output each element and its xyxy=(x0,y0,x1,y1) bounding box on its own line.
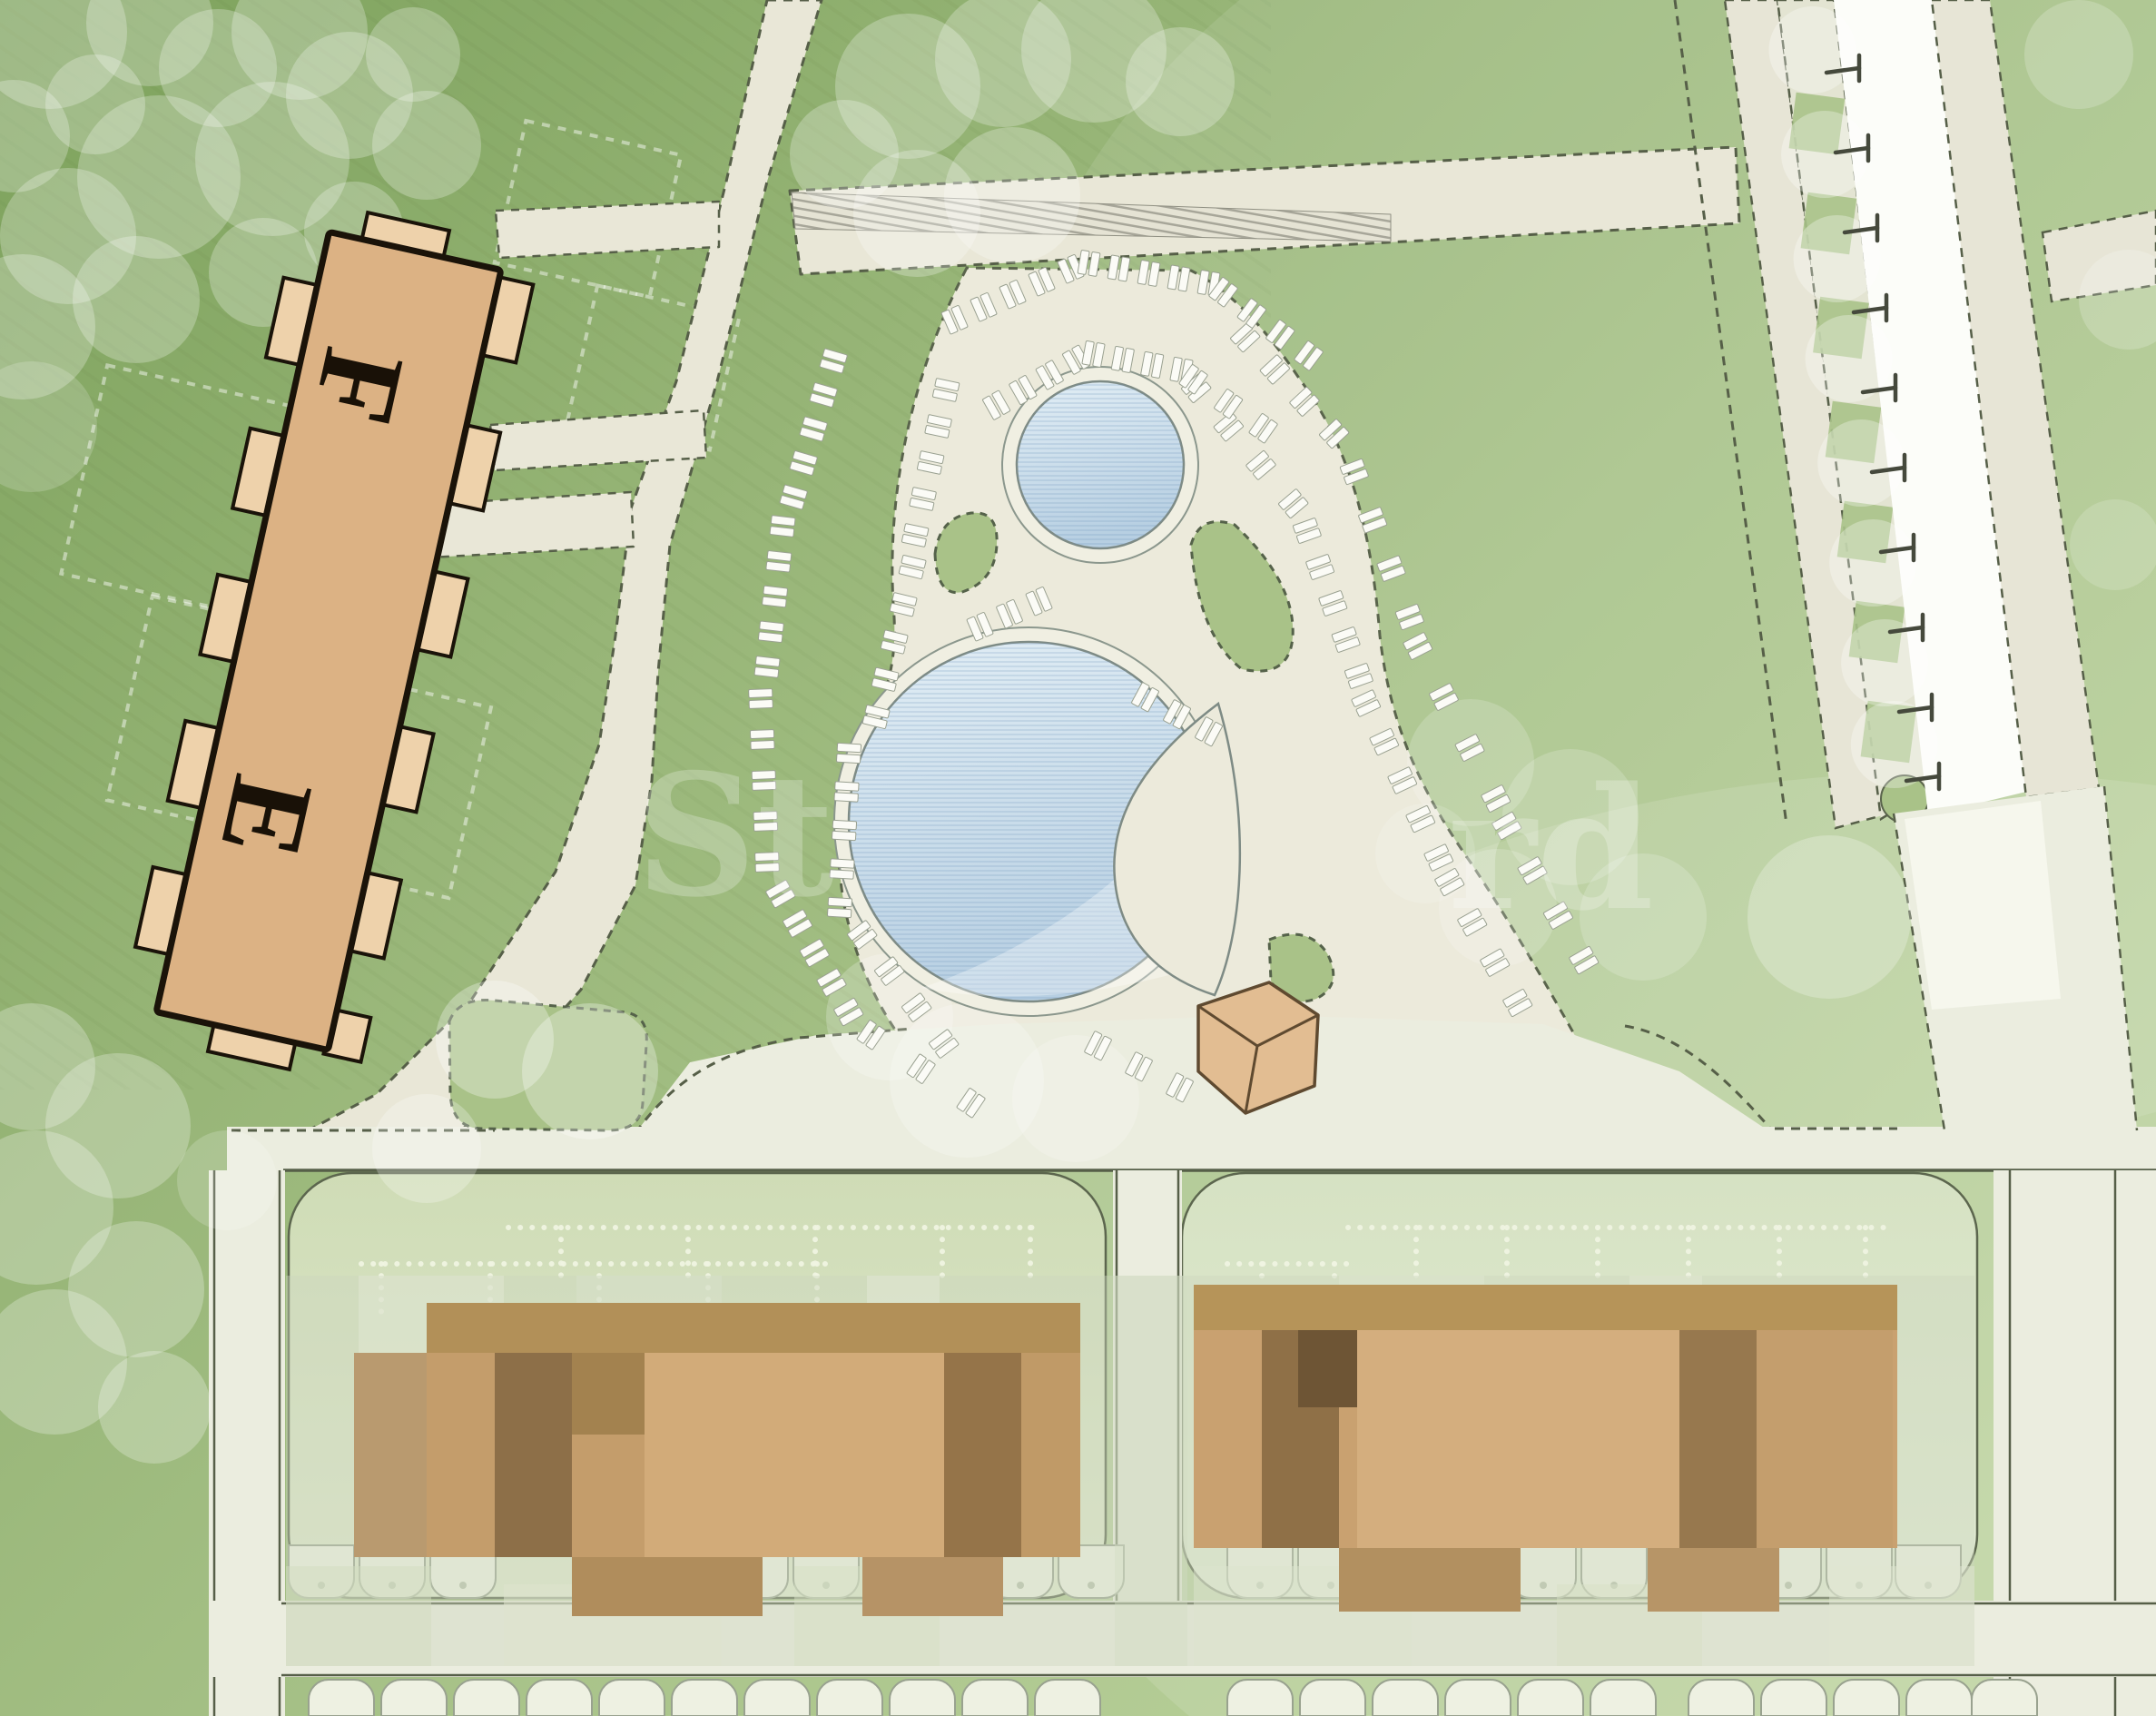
tree-canopy xyxy=(1012,1035,1139,1162)
parking-bay xyxy=(962,1680,1028,1716)
parking-bay xyxy=(1035,1680,1100,1716)
tree-canopy xyxy=(522,1003,658,1139)
mosaic-cell xyxy=(286,1566,431,1666)
tree-canopy xyxy=(2024,0,2133,109)
intersection-pale-patch xyxy=(1905,801,2061,1010)
median-tree xyxy=(1769,6,1856,94)
tree-canopy xyxy=(1747,835,1911,999)
tree-canopy xyxy=(366,7,460,102)
mosaic-cell xyxy=(495,1353,572,1557)
parking-bay xyxy=(1972,1680,2037,1716)
tree-canopy xyxy=(1126,27,1235,136)
tree-canopy xyxy=(372,1094,481,1203)
tree-canopy xyxy=(944,127,1080,263)
mosaic-cell xyxy=(572,1353,645,1435)
mosaic-cell xyxy=(645,1353,962,1557)
parking-bay xyxy=(454,1680,519,1716)
parking-bay xyxy=(381,1680,447,1716)
mosaic-cell xyxy=(354,1353,427,1557)
mosaic-cell xyxy=(1021,1353,1080,1557)
parking-bay xyxy=(744,1680,810,1716)
watermark-left: St xyxy=(635,736,834,934)
mosaic-cell xyxy=(1648,1548,1779,1612)
mosaic-cell xyxy=(1829,1566,1974,1666)
mosaic-cell xyxy=(1194,1285,1897,1330)
parking-bay xyxy=(527,1680,592,1716)
parking-bay xyxy=(599,1680,665,1716)
tree-canopy xyxy=(372,91,481,200)
parking-bay xyxy=(1688,1680,1754,1716)
tree-canopy xyxy=(98,1351,211,1464)
parking-bay xyxy=(309,1680,374,1716)
site-plan-canvas: F E St rd xyxy=(0,0,2156,1716)
parking-bay xyxy=(890,1680,955,1716)
mosaic-cell xyxy=(1298,1330,1357,1407)
road-bottom-upper xyxy=(227,1127,2156,1170)
parking-bay xyxy=(817,1680,882,1716)
tree-canopy xyxy=(73,236,200,363)
median-tree xyxy=(1829,519,1916,607)
mosaic-cell xyxy=(1339,1548,1521,1612)
parking-bay xyxy=(1373,1680,1438,1716)
mosaic-cell xyxy=(572,1557,763,1616)
median-tree xyxy=(1817,419,1905,507)
parking-bay xyxy=(1590,1680,1656,1716)
mosaic-cell xyxy=(1757,1330,1893,1548)
median-tree xyxy=(1841,619,1928,706)
mosaic-cell xyxy=(862,1557,1003,1616)
site-plan: F E St rd xyxy=(0,0,2156,1716)
tree-canopy xyxy=(790,100,899,209)
parking-bay xyxy=(1906,1680,1972,1716)
watermark-right: rd xyxy=(1448,750,1654,948)
parking-bay xyxy=(1761,1680,1826,1716)
pixelated-buildings[interactable] xyxy=(286,1276,1974,1666)
mosaic-cell xyxy=(1115,1276,1187,1666)
parking-bay xyxy=(1445,1680,1511,1716)
parking-bay xyxy=(1300,1680,1365,1716)
median-tree xyxy=(1851,701,1938,788)
small-pool-waves xyxy=(1017,381,1184,548)
mosaic-cell xyxy=(427,1303,1080,1353)
mosaic-cell xyxy=(944,1353,1021,1557)
mosaic-cell xyxy=(1679,1330,1757,1548)
median-tree xyxy=(1781,111,1868,198)
parking-bay xyxy=(1518,1680,1583,1716)
parking-bay xyxy=(1834,1680,1899,1716)
tree-canopy xyxy=(177,1130,277,1230)
mosaic-cell xyxy=(1357,1330,1679,1548)
parking-bay xyxy=(672,1680,737,1716)
parking-bay xyxy=(1227,1680,1293,1716)
